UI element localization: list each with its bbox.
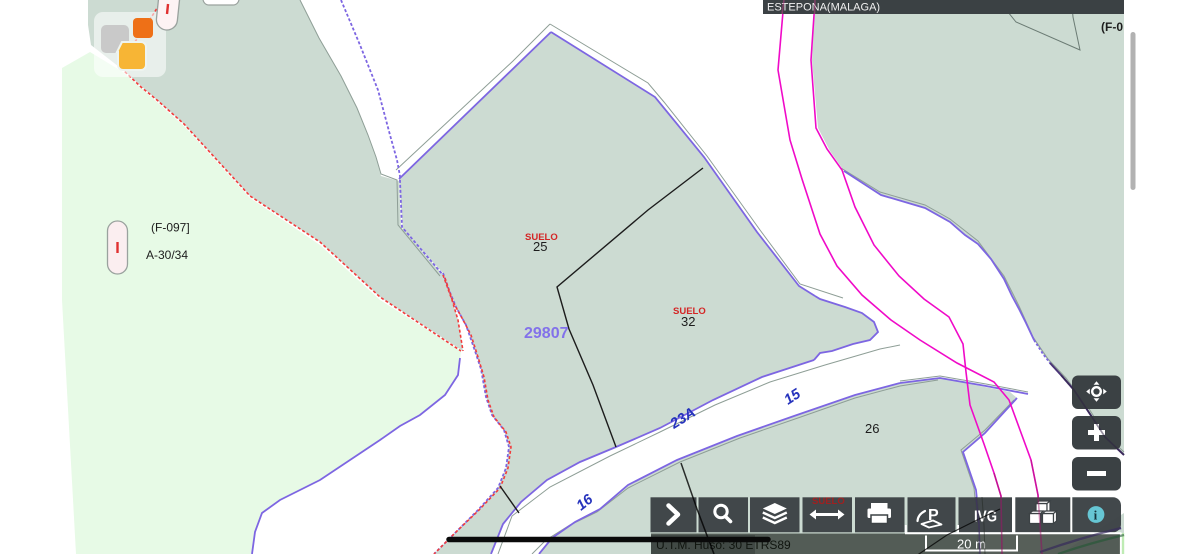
svg-text:A-30/34: A-30/34 <box>146 248 188 262</box>
svg-text:SUELO: SUELO <box>812 496 845 507</box>
svg-text:29807: 29807 <box>524 325 569 342</box>
svg-text:20 m: 20 m <box>957 537 986 552</box>
svg-text:26: 26 <box>865 421 879 436</box>
svg-text:(F-0: (F-0 <box>1101 20 1123 34</box>
svg-text:32: 32 <box>681 314 695 329</box>
svg-text:i: i <box>1094 508 1098 523</box>
svg-text:(F-097]: (F-097] <box>151 221 190 235</box>
svg-text:25: 25 <box>533 239 547 254</box>
